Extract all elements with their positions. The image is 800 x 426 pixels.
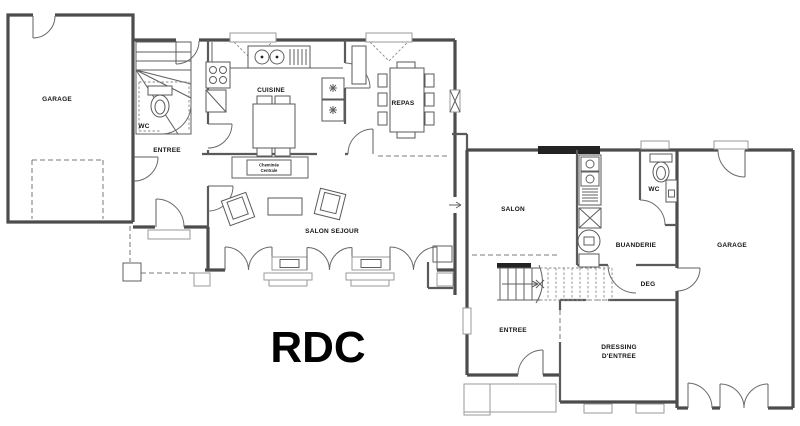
label-entree-right: ENTREE xyxy=(499,327,527,334)
right-outer-walls xyxy=(463,141,793,415)
label-entree-left: ENTREE xyxy=(153,147,181,154)
living-room: SALON SEJOUR xyxy=(221,188,359,235)
kitchen-table-icon xyxy=(253,96,295,156)
left-garage: GARAGE xyxy=(8,15,133,222)
fireplace-icon: Cheminée Centrale xyxy=(232,157,308,178)
label-salon-sejour: SALON SEJOUR xyxy=(305,228,359,235)
armchair-icon xyxy=(314,188,346,220)
window-east xyxy=(450,90,460,112)
floor-plan-page: GARAGE xyxy=(0,0,800,426)
label-cheminee-2: Centrale xyxy=(261,168,278,173)
label-wc-left: WC xyxy=(138,123,149,130)
laundry-sinks-icon xyxy=(579,155,601,205)
label-dressing-2: D'ENTREE xyxy=(602,353,637,360)
kitchen: CUISINE xyxy=(206,42,366,156)
label-garage-right: GARAGE xyxy=(717,242,747,249)
window-top-repas xyxy=(366,33,412,61)
label-cheminee-1: Cheminée xyxy=(259,163,280,168)
laundry-tub-icon xyxy=(579,208,601,228)
window-dark-bar xyxy=(538,146,600,154)
toilet-left: WC xyxy=(138,86,172,130)
label-cuisine: CUISINE xyxy=(257,87,285,94)
right-interior-walls xyxy=(472,150,677,402)
label-wc-right: WC xyxy=(648,186,659,193)
kitchen-sink-icon xyxy=(248,46,310,68)
french-doors xyxy=(194,247,453,286)
coffee-table-icon xyxy=(268,198,302,215)
washer-icon xyxy=(578,230,600,252)
stairs-right xyxy=(497,263,612,303)
left-building: GARAGE xyxy=(8,15,467,295)
right-building: WC SALON BUANDERIE DEG ENTREE DRESSING D… xyxy=(463,141,793,415)
label-salon: SALON xyxy=(501,206,525,213)
plan-title: RDC xyxy=(270,323,365,372)
floor-plan-canvas: GARAGE xyxy=(0,0,800,426)
window-west-right xyxy=(463,308,471,334)
appliance-stack-icon xyxy=(322,78,344,121)
cooktop-icon xyxy=(206,62,230,88)
label-repas: REPAS xyxy=(392,100,415,107)
label-garage-left: GARAGE xyxy=(42,96,72,103)
boiler-icon xyxy=(666,180,677,202)
dining-room: REPAS xyxy=(378,62,434,138)
label-deg: DEG xyxy=(641,281,656,288)
label-buanderie: BUANDERIE xyxy=(616,242,657,249)
label-dressing-1: DRESSING xyxy=(601,344,637,351)
building-junction xyxy=(428,134,467,288)
laundry-cabinet-icon xyxy=(579,254,599,267)
armchair-icon xyxy=(221,192,254,225)
